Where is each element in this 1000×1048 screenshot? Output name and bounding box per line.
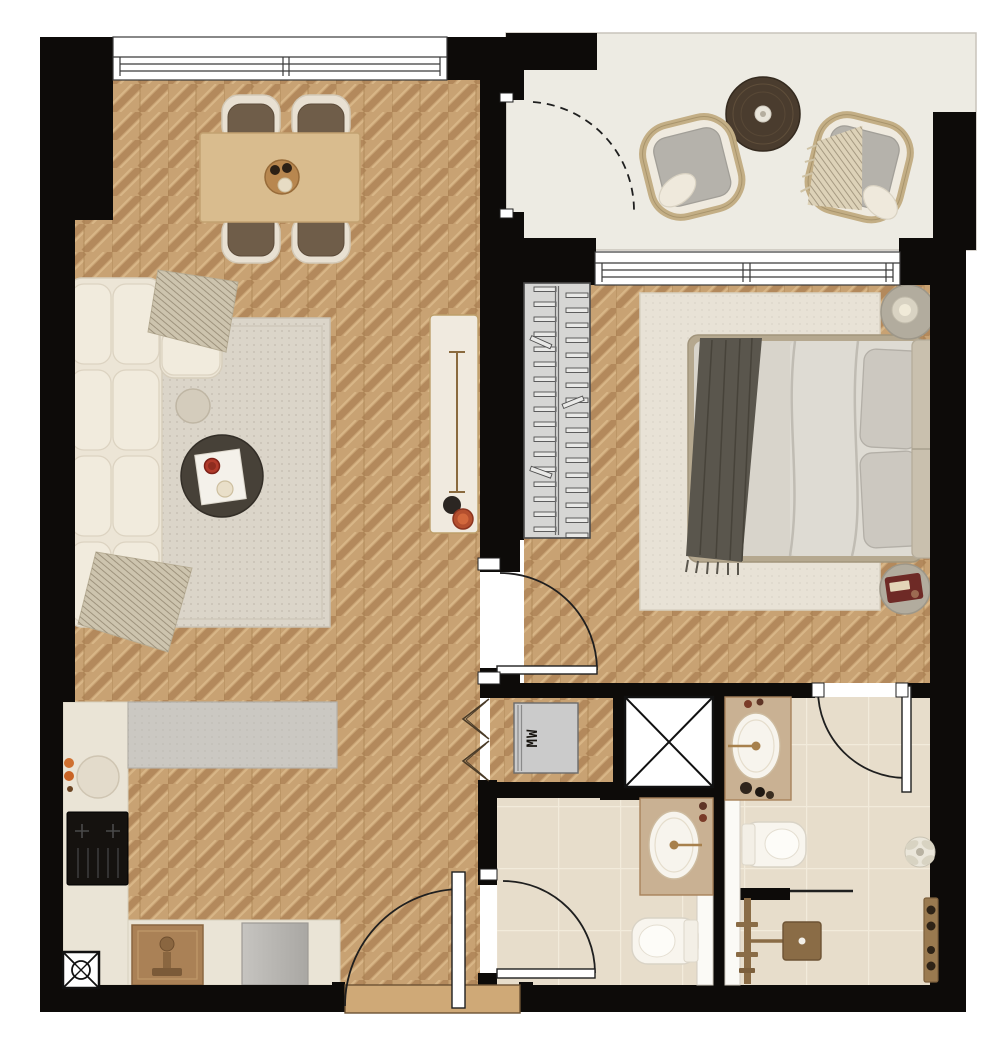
door-jamb-post bbox=[332, 982, 345, 1012]
wall bbox=[933, 112, 976, 250]
entrance-threshold bbox=[345, 985, 520, 1013]
wall bbox=[520, 985, 966, 1012]
ventilation-shaft-icon bbox=[625, 697, 713, 787]
door-jamb bbox=[478, 672, 500, 684]
wall bbox=[520, 238, 596, 285]
mw-appliance: MW bbox=[514, 703, 578, 773]
wall bbox=[40, 37, 75, 702]
door-leaf bbox=[902, 686, 911, 792]
wall bbox=[480, 212, 524, 287]
wall bbox=[713, 683, 725, 985]
nightstand-top bbox=[881, 285, 935, 339]
shower-handle bbox=[739, 968, 755, 973]
nightstand-bottom bbox=[880, 564, 930, 614]
kitchen-shaft-icon bbox=[63, 952, 99, 988]
wall bbox=[480, 285, 524, 540]
bottle bbox=[766, 791, 774, 799]
double-bed bbox=[686, 335, 938, 575]
table-centerpiece bbox=[265, 160, 299, 194]
floor-plan-svg: MW bbox=[0, 0, 1000, 1048]
fruit bbox=[64, 758, 74, 768]
console-table bbox=[430, 315, 478, 533]
shower-bracket bbox=[736, 922, 758, 927]
soap-item bbox=[699, 802, 707, 810]
counter-speckle bbox=[128, 702, 337, 768]
appliance-label: MW bbox=[525, 729, 541, 748]
bottle bbox=[755, 787, 765, 797]
drain bbox=[670, 841, 679, 850]
wall bbox=[40, 700, 63, 1012]
wall bbox=[613, 683, 625, 790]
door-jamb-post bbox=[519, 982, 533, 1012]
soap-item bbox=[744, 700, 752, 708]
kitchen-sink bbox=[132, 925, 203, 985]
dishwasher bbox=[242, 923, 308, 985]
side-table bbox=[176, 389, 210, 423]
toilet-tank bbox=[684, 920, 698, 962]
induction-cooktop bbox=[67, 812, 128, 885]
door-leaf bbox=[497, 969, 595, 978]
glass-panel bbox=[725, 800, 740, 985]
lamp-shade-center bbox=[899, 304, 911, 316]
wardrobe bbox=[524, 283, 590, 538]
living-window bbox=[113, 37, 447, 80]
wall bbox=[725, 683, 818, 697]
balcony-table bbox=[726, 77, 800, 151]
wall bbox=[506, 33, 597, 70]
faucet-icon bbox=[160, 937, 174, 951]
red-bowl-inner bbox=[458, 514, 469, 525]
door-leaf bbox=[452, 872, 465, 1008]
door-jamb bbox=[478, 558, 500, 570]
door-jamb bbox=[812, 683, 824, 697]
door-jamb bbox=[500, 93, 513, 102]
soap-item bbox=[699, 814, 707, 822]
vanity bbox=[725, 697, 791, 800]
plant bbox=[904, 837, 936, 867]
toilet bbox=[632, 918, 698, 964]
vanity bbox=[640, 798, 713, 895]
fruit bbox=[64, 771, 74, 781]
wall bbox=[899, 238, 933, 285]
small-item bbox=[911, 590, 919, 598]
toilet-bowl bbox=[639, 925, 675, 957]
cutting-board bbox=[77, 756, 119, 798]
toilet bbox=[742, 822, 806, 867]
table-decor-dot bbox=[760, 111, 766, 117]
soap-item bbox=[757, 699, 764, 706]
drain bbox=[752, 742, 761, 751]
bedroom-window bbox=[595, 252, 900, 285]
shower-bracket bbox=[736, 952, 758, 957]
door-jamb bbox=[500, 209, 513, 218]
bottle bbox=[740, 782, 752, 794]
door-jamb bbox=[480, 869, 497, 880]
living-area bbox=[68, 270, 330, 652]
floor-plan: MW bbox=[0, 0, 1000, 1048]
red-cup-inner bbox=[208, 462, 216, 470]
door-jamb bbox=[896, 683, 908, 697]
toilet-tank bbox=[742, 824, 755, 865]
coffee-table bbox=[181, 435, 263, 517]
dining-set bbox=[200, 95, 360, 263]
door-leaf bbox=[497, 666, 597, 674]
coffee-table-tray bbox=[195, 449, 247, 505]
shower-head-center bbox=[799, 938, 806, 945]
cream-dish bbox=[217, 481, 233, 497]
toilet-bowl bbox=[765, 829, 799, 859]
faucet-handle bbox=[152, 968, 182, 976]
fruit bbox=[67, 786, 73, 792]
